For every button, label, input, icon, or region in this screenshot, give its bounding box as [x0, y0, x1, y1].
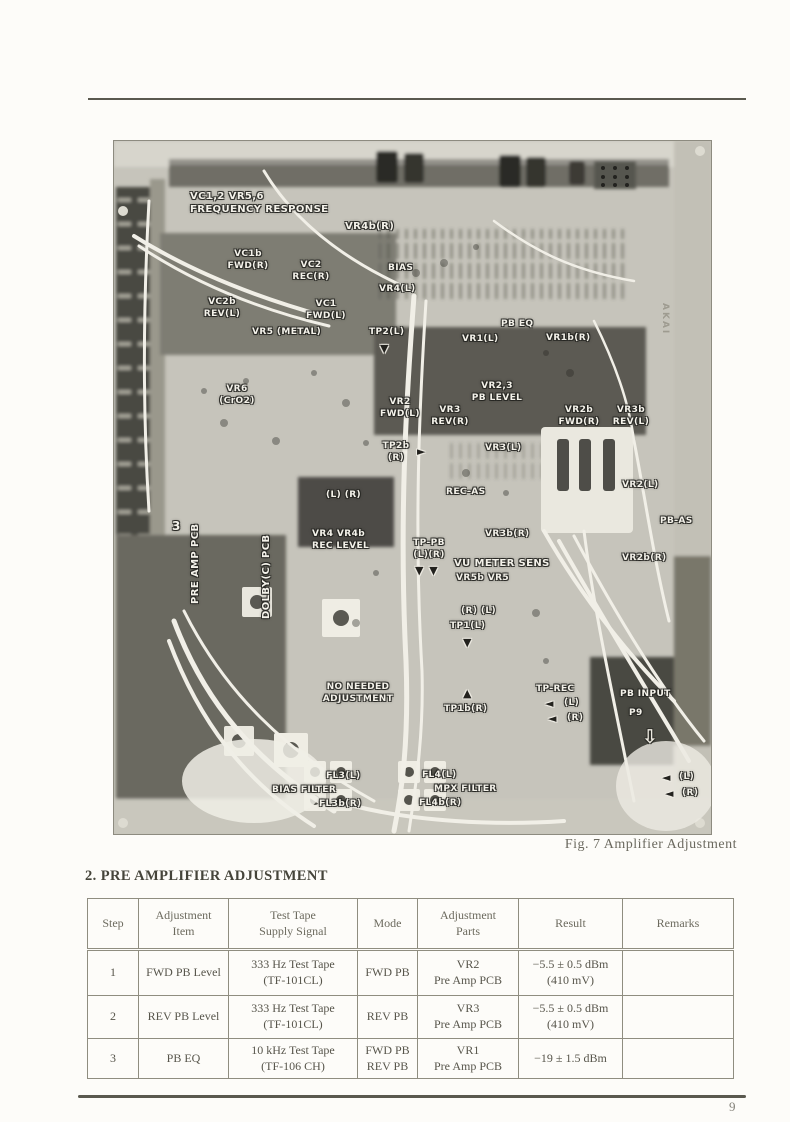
vr3-rev-r-label: VR3 REV(R) — [428, 405, 472, 428]
fl3b-r-label: FL3b(R) — [319, 799, 362, 811]
table-cell: 10 kHz Test Tape (TF-106 CH) — [229, 1039, 358, 1079]
pb-input-label: PB INPUT — [620, 689, 671, 701]
tp1b-r-label: TP1b(R) — [444, 704, 487, 716]
pre-amp-pcb-label: PRE AMP PCB — [189, 523, 202, 604]
vr4-l-label: VR4(L) — [379, 284, 416, 296]
vu-meter-sens-label: VU METER SENS — [454, 557, 550, 570]
pb-out-l-arrow-icon: ◄ — [662, 771, 671, 785]
table-cell — [623, 950, 734, 996]
vr2b-r-label: VR2b(R) — [622, 553, 667, 565]
table-row: 2 REV PB Level 333 Hz Test Tape (TF-101C… — [88, 996, 734, 1039]
vc1b-fwd-r-label: VC1b FWD(R) — [226, 249, 270, 272]
col-header-test-tape: Test Tape Supply Signal — [229, 899, 358, 950]
vr2b-fwd-r-label: VR2b FWD(R) — [556, 405, 602, 428]
table-cell: −19 ± 1.5 dBm — [519, 1039, 623, 1079]
pb-as-label: PB-AS — [660, 516, 693, 528]
l-r-pair-label: (L) (R) — [326, 490, 361, 502]
pb-out-r-arrow-icon: ◄ — [665, 787, 674, 801]
vr1-l-label: VR1(L) — [462, 334, 499, 346]
tp-rec-l-arrow-icon: ◄ — [545, 697, 554, 711]
vr3-l-label: VR3(L) — [485, 443, 522, 455]
table-cell: 1 — [88, 950, 139, 996]
tp1-l-label: TP1(L) — [450, 621, 485, 633]
table-cell: 2 — [88, 996, 139, 1039]
page-number: 9 — [729, 1099, 736, 1115]
col-header-mode: Mode — [358, 899, 418, 950]
p9-arrow-icon: ⇩ — [642, 725, 658, 750]
tp1b-r-arrow-icon: ▲ — [463, 687, 472, 701]
p9-label: P9 — [629, 708, 643, 720]
vr4-vr4b-rec-level-label: VR4 VR4b REC LEVEL — [312, 529, 369, 552]
tp-rec-l-label: (L) — [564, 698, 579, 710]
table-cell: 333 Hz Test Tape (TF-101CL) — [229, 996, 358, 1039]
vr23-pb-level-label: VR2,3 PB LEVEL — [471, 381, 523, 404]
vc1-fwd-l-label: VC1 FWD(L) — [304, 299, 348, 322]
col-header-adjustment-item: Adjustment Item — [139, 899, 229, 950]
pb-out-l-label: (L) — [679, 772, 694, 784]
tp-rec-r-label: (R) — [567, 713, 583, 725]
no-needed-adjustment-label: NO NEEDED ADJUSTMENT — [322, 682, 394, 705]
vr5b-vr5-label: VR5b VR5 — [456, 573, 509, 585]
table-cell: REV PB Level — [139, 996, 229, 1039]
vr3b-r-label: VR3b(R) — [485, 529, 530, 541]
tp-pb-label: TP-PB (L)(R) — [409, 538, 449, 561]
manual-page: { "page": { "number": "9" }, "section": … — [0, 0, 790, 1122]
table-cell: VR3 Pre Amp PCB — [418, 996, 519, 1039]
tp2b-r-arrow-icon: ► — [417, 445, 426, 459]
col-header-result: Result — [519, 899, 623, 950]
table-cell: REV PB — [358, 996, 418, 1039]
tp-pb-arrows-icon: ▼ ▼ — [415, 564, 439, 578]
table-row: 1 FWD PB Level 333 Hz Test Tape (TF-101C… — [88, 950, 734, 996]
table-cell: VR1 Pre Amp PCB — [418, 1039, 519, 1079]
table-cell — [623, 996, 734, 1039]
col-header-step: Step — [88, 899, 139, 950]
vr2-fwd-l-label: VR2 FWD(L) — [378, 397, 422, 420]
table-cell: PB EQ — [139, 1039, 229, 1079]
table-header-row: Step Adjustment Item Test Tape Supply Si… — [88, 899, 734, 950]
tp2-l-label: TP2(L) — [369, 327, 404, 339]
table-cell — [623, 1039, 734, 1079]
connector-3-label: 3 — [172, 519, 181, 535]
vc2-rec-r-label: VC2 REC(R) — [289, 260, 333, 283]
tp2-l-arrow-icon: ▼ — [380, 342, 389, 356]
akai-mark-label: AKAI — [658, 303, 670, 335]
tp1-l-arrow-icon: ▼ — [463, 636, 472, 650]
top-rule — [88, 98, 746, 100]
bottom-rule — [78, 1095, 746, 1098]
table-cell: FWD PB Level — [139, 950, 229, 996]
fl4b-r-label: FL4b(R) — [419, 798, 462, 810]
table-row: 3 PB EQ 10 kHz Test Tape (TF-106 CH) FWD… — [88, 1039, 734, 1079]
table-cell: FWD PB REV PB — [358, 1039, 418, 1079]
dolby-pcb-label: DOLBY(C) PCB — [260, 534, 273, 619]
table-cell: −5.5 ± 0.5 dBm (410 mV) — [519, 950, 623, 996]
tp-rec-label: TP-REC — [536, 684, 574, 696]
fl3-l-label: FL3(L) — [326, 771, 361, 783]
vr2-l-label: VR2(L) — [622, 480, 659, 492]
tp-rec-r-arrow-icon: ◄ — [548, 712, 557, 726]
pb-out-r-label: (R) — [682, 788, 698, 800]
fl4-l-label: FL4(L) — [422, 770, 457, 782]
figure-caption: Fig. 7 Amplifier Adjustment — [565, 837, 737, 853]
table-cell: FWD PB — [358, 950, 418, 996]
section-heading: 2. PRE AMPLIFIER ADJUSTMENT — [85, 868, 328, 885]
rec-as-label: REC-AS — [446, 487, 485, 499]
adjustment-table: Step Adjustment Item Test Tape Supply Si… — [87, 898, 734, 1079]
r-l-pair-label: (R) (L) — [461, 606, 496, 618]
table-cell: 333 Hz Test Tape (TF-101CL) — [229, 950, 358, 996]
pb-eq-label: PB EQ — [501, 319, 533, 331]
vr6-cro2-label: VR6 (CrO2) — [217, 384, 257, 407]
vr4b-r-label: VR4b(R) — [345, 220, 394, 233]
photo-annotations: VC1,2 VR5,6 FREQUENCY RESPONSEVR4b(R)VC1… — [114, 141, 711, 834]
vr3b-rev-l-label: VR3b REV(L) — [609, 405, 653, 428]
vc2b-rev-l-label: VC2b REV(L) — [200, 297, 244, 320]
col-header-adjustment-parts: Adjustment Parts — [418, 899, 519, 950]
freq-response-label: VC1,2 VR5,6 FREQUENCY RESPONSE — [190, 190, 328, 216]
bias-label: BIAS — [388, 263, 413, 275]
mpx-filter-label: MPX FILTER — [434, 784, 497, 796]
table-cell: 3 — [88, 1039, 139, 1079]
vr5-metal-label: VR5 (METAL) — [252, 327, 321, 339]
bias-filter-label: BIAS FILTER — [272, 785, 336, 797]
tp2b-r-label: TP2b (R) — [378, 441, 414, 464]
col-header-remarks: Remarks — [623, 899, 734, 950]
vr1b-r-label: VR1b(R) — [546, 333, 591, 345]
table-cell: −5.5 ± 0.5 dBm (410 mV) — [519, 996, 623, 1039]
amplifier-photo-figure: VC1,2 VR5,6 FREQUENCY RESPONSEVR4b(R)VC1… — [113, 140, 712, 835]
table-cell: VR2 Pre Amp PCB — [418, 950, 519, 996]
